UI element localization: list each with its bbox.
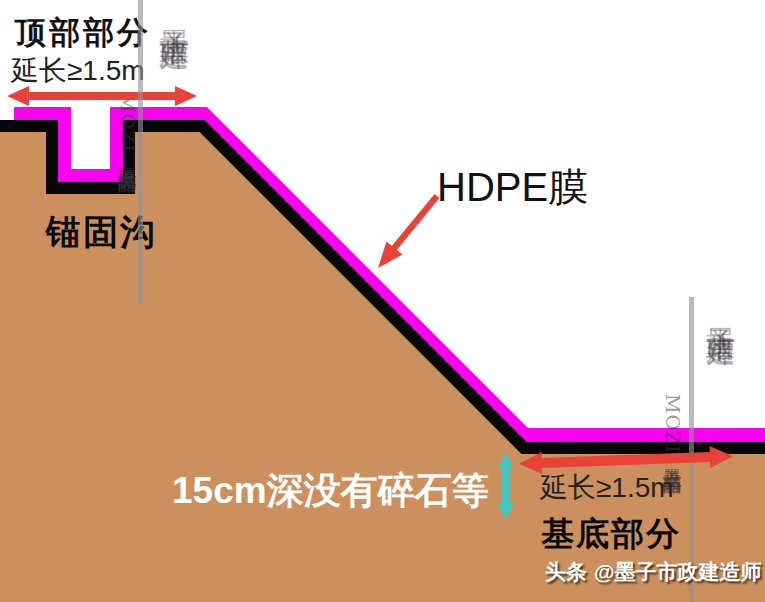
membrane-pointer-arrow <box>378 196 437 268</box>
credit-prefix: 头条 <box>545 560 587 583</box>
base-section-title: 基底部分 <box>541 512 681 557</box>
depth-arrow <box>498 453 514 519</box>
membrane-label: HDPE膜 <box>437 160 588 215</box>
credit-handle: @墨子市政建造师 <box>594 560 761 583</box>
base-depth-note: 15cm深没有碎石等 <box>172 466 489 516</box>
watermark-rule-left <box>138 0 143 303</box>
slope-membrane-diagram: 墨子市政建造师 墨子市政建造师 MOZI墨子出品必属精品 MOZI墨子出品必属精… <box>0 0 765 602</box>
base-extend-note: 延长≥1.5m <box>540 469 674 507</box>
top-extend-note: 延长≥1.5m <box>11 52 145 90</box>
top-section-title: 顶部部分 <box>15 12 151 54</box>
credit-line: 头条@墨子市政建造师 <box>545 558 761 586</box>
